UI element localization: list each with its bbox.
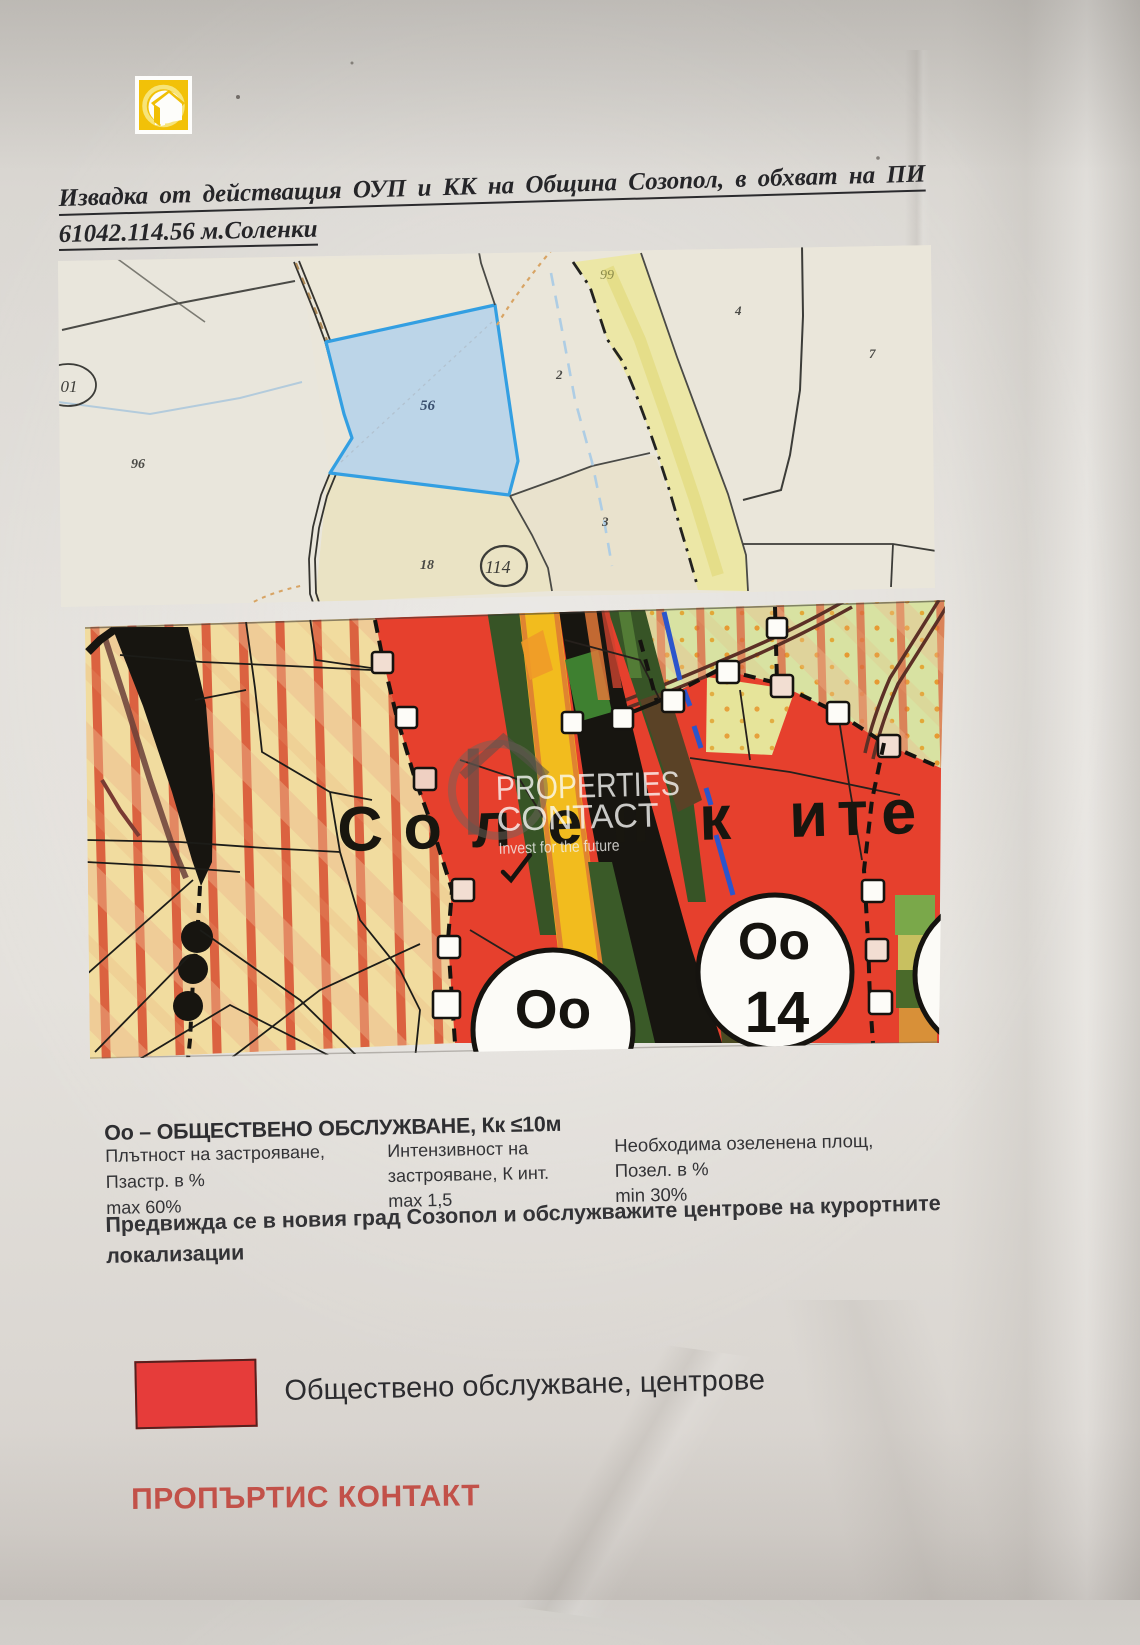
svg-text:О: О	[952, 921, 986, 970]
svg-text:т: т	[836, 779, 869, 850]
svg-text:С: С	[336, 794, 384, 865]
svg-text:о: о	[402, 792, 443, 863]
svg-text:14: 14	[745, 980, 810, 1045]
svg-text:е: е	[880, 777, 917, 848]
svg-text:к: к	[698, 783, 732, 854]
svg-text:Оо: Оо	[515, 978, 591, 1040]
svg-text:Оо: Оо	[738, 913, 810, 971]
svg-text:CONTACT: CONTACT	[496, 796, 659, 839]
svg-text:Invest for the future: Invest for the future	[498, 838, 620, 858]
svg-text:и: и	[788, 780, 829, 851]
